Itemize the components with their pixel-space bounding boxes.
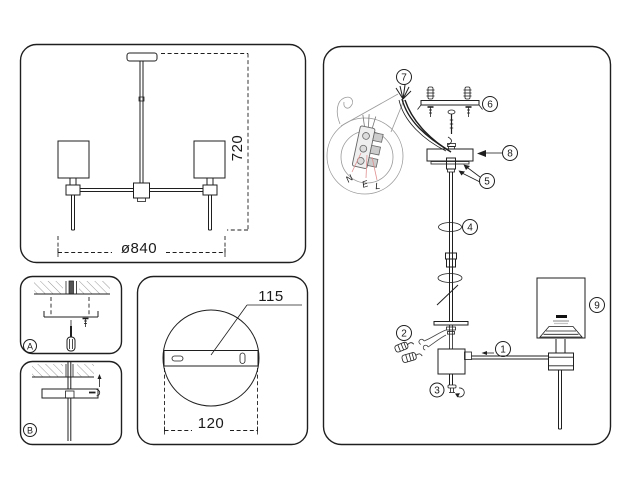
callout-4-label: 4 <box>467 223 473 234</box>
wire-label-live: L <box>375 181 381 191</box>
callout-6-label: 6 <box>487 100 493 111</box>
screwdriver-icon <box>67 320 75 351</box>
dimension-lines <box>58 54 248 253</box>
cable-hook <box>337 97 352 124</box>
wiring-detail-balloon: N E L <box>327 94 404 194</box>
bracket-length-dimension: 115 <box>258 288 283 305</box>
strap-screw-right <box>466 107 472 117</box>
rotate-arrow <box>455 388 464 398</box>
wall-anchor-left <box>427 87 435 99</box>
left-socket-block <box>66 185 80 195</box>
panel-overview: 720 ø840 <box>21 45 306 263</box>
panel-assembly: N E L <box>324 47 611 445</box>
callout-3: 3 <box>430 383 444 397</box>
main-rod <box>450 172 453 322</box>
mounting-bracket <box>44 311 98 317</box>
drill-anchor <box>69 281 74 294</box>
callout-9-label: 9 <box>594 301 600 312</box>
ceiling-canopy <box>127 53 157 61</box>
callout-9: 9 <box>590 298 605 313</box>
callout-2: 2 <box>397 326 412 341</box>
lamp-arm <box>472 356 550 359</box>
drop-rod <box>559 370 562 429</box>
candle-tube <box>556 339 565 353</box>
panel-step-a: A <box>21 277 122 354</box>
callout-7: 7 <box>397 70 412 85</box>
callout-1-label: 1 <box>500 345 506 356</box>
callout-step-a: A <box>24 340 37 353</box>
left-shade <box>58 141 89 178</box>
rod-coupler <box>446 253 457 267</box>
callout-8: 8 <box>477 146 518 161</box>
canopy-crossbar <box>431 162 469 165</box>
supply-wires <box>396 85 451 152</box>
slot-horizontal <box>172 356 183 361</box>
shade-body <box>537 278 585 338</box>
arm-socket <box>465 352 472 360</box>
callout-5-label: 5 <box>484 177 490 188</box>
center-hub <box>134 183 150 198</box>
break-slash <box>437 285 458 305</box>
hub-body <box>438 349 465 374</box>
callout-2-label: 2 <box>401 329 407 340</box>
hanging-rod <box>68 398 71 441</box>
panel-plate: 115 120 <box>138 277 308 445</box>
callout-3-label: 3 <box>434 386 440 397</box>
mounting-strap <box>421 101 479 106</box>
step-b-label: B <box>27 425 33 435</box>
diagram-canvas: 720 ø840 A <box>0 0 630 490</box>
hub-wires <box>419 330 446 350</box>
callout-step-b: B <box>24 424 37 437</box>
callout-7-label: 7 <box>401 73 407 84</box>
wall-anchor-right <box>464 87 472 99</box>
finial-screw <box>448 385 456 393</box>
cord-grip <box>448 137 456 149</box>
callout-6: 6 <box>483 97 498 112</box>
hub-disc <box>434 322 468 326</box>
strap-screw-left <box>428 107 434 117</box>
wire-connectors <box>394 339 423 363</box>
callout-8-label: 8 <box>507 149 513 160</box>
wire-label-neutral: N <box>344 172 355 184</box>
callout-1: 1 <box>496 342 511 357</box>
arm-joint-block <box>549 353 574 370</box>
insert-arrow <box>482 351 495 355</box>
mounting-bar <box>164 351 258 367</box>
chandelier-drawing <box>58 53 225 230</box>
mounting-screw <box>83 319 89 328</box>
instruction-sheet: 720 ø840 A <box>0 0 630 490</box>
canopy-plate <box>42 389 98 398</box>
right-shade <box>194 141 225 178</box>
callout-4: 4 <box>463 220 478 235</box>
plate-width-dimension: 120 <box>198 415 225 432</box>
slot-vertical <box>240 353 245 364</box>
height-dimension: 720 <box>229 135 246 162</box>
callout-5: 5 <box>459 165 495 189</box>
wire-label-earth: E <box>361 178 371 190</box>
shade-diffuser <box>540 327 582 338</box>
panel-step-b: B <box>21 362 122 445</box>
step-a-label: A <box>27 341 33 351</box>
diameter-dimension: ø840 <box>121 240 157 257</box>
right-socket-block <box>203 185 217 195</box>
overview-panel-border <box>21 45 306 263</box>
center-screw <box>448 110 455 134</box>
tighten-arrow <box>98 374 102 387</box>
rod-collar <box>447 158 456 169</box>
